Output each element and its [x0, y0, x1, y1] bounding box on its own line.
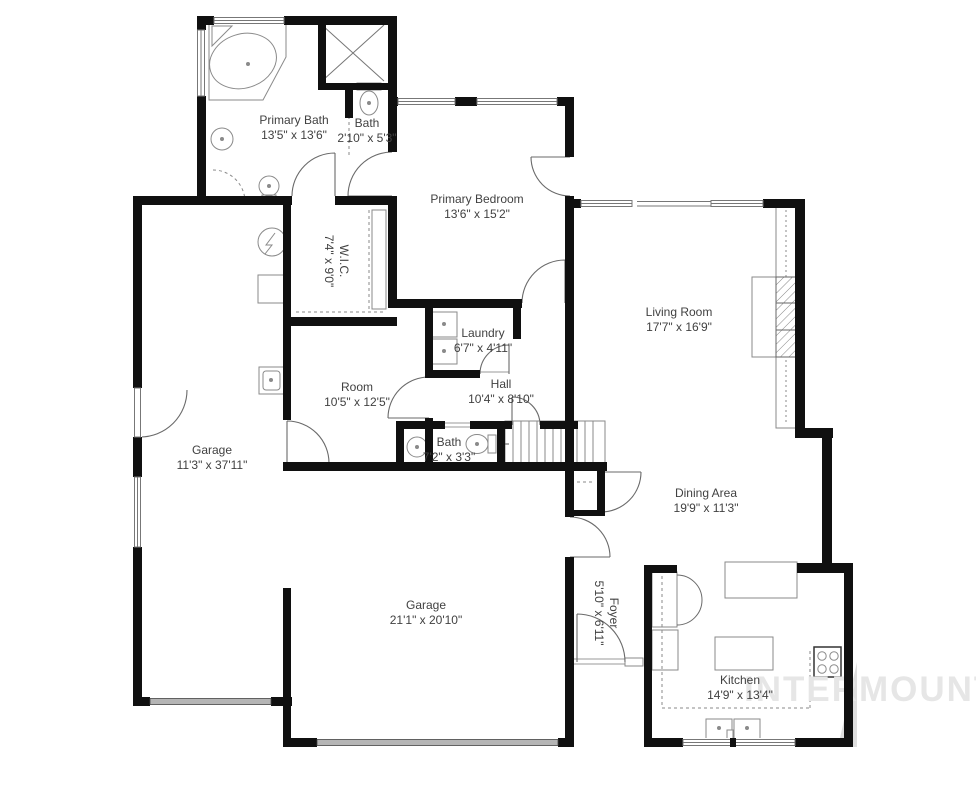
- garage-door-left: [150, 699, 271, 705]
- kitchen-pantry: [652, 572, 702, 670]
- door-garage-to-dining: [570, 517, 610, 557]
- entry-sill: [625, 658, 643, 666]
- door-garage-side-entry: [140, 390, 187, 437]
- door-understair-closet: [601, 472, 641, 512]
- watermark-text: INTERMOUNTAIN: [744, 670, 976, 709]
- front-door-threshold: [573, 659, 625, 664]
- room-label-bath-upper: Bath 2'10" x 5'3": [337, 116, 396, 146]
- door-room: [388, 377, 429, 418]
- door-primary-bath: [348, 152, 392, 196]
- room-label-dining-area: Dining Area 19'9" x 11'3": [674, 486, 739, 516]
- room-label-kitchen: Kitchen 14'9" x 13'4": [707, 673, 773, 703]
- water-heater: [258, 228, 286, 256]
- room-label-primary-bath: Primary Bath 13'5" x 13'6": [259, 113, 328, 143]
- door-garage-to-room: [287, 421, 329, 463]
- kitchen-island: [715, 637, 773, 670]
- sink-drain: [221, 138, 224, 141]
- room-label-foyer: Foyer 5'10" x 6'11": [591, 581, 621, 646]
- room-label-primary-bedroom: Primary Bedroom 13'6" x 15'2": [430, 192, 523, 222]
- room-label-garage-left: Garage 11'3" x 37'11": [177, 443, 248, 473]
- room-label-laundry: Laundry 6'7" x 4'11": [454, 326, 512, 356]
- corner-tub: [202, 23, 286, 100]
- room-label-room: Room 10'5" x 12'5": [324, 380, 390, 410]
- window-mullion: [730, 738, 736, 747]
- door-primary-bedroom-south: [522, 260, 565, 303]
- kitchen-counter-peninsula: [725, 562, 797, 598]
- room-label-wic: W.I.C. 7'4" x 9'0": [321, 235, 351, 287]
- door-wic: [292, 153, 335, 196]
- shower-glass: [322, 25, 384, 81]
- bath-pocket-door: [445, 423, 470, 427]
- room-label-hall: Hall 10'4" x 8'10": [468, 377, 534, 407]
- fireplace: [752, 207, 796, 428]
- room-label-garage-main: Garage 21'1" x 20'10": [390, 598, 463, 628]
- watermark: INTERMOUNTAIN: [744, 662, 976, 747]
- garage-door-main: [317, 740, 558, 746]
- floor-plan-page: INTERMOUNTAIN: [0, 0, 976, 786]
- lower-bath-sink-drain: [416, 446, 419, 449]
- utility-sink: [259, 367, 284, 394]
- room-label-living-room: Living Room 17'7" x 16'9": [646, 305, 713, 335]
- room-label-bath-lower: Bath 7'2" x 3'3": [423, 435, 475, 465]
- windows-layer: [133, 16, 795, 747]
- door-primary-bedroom-east: [531, 157, 570, 196]
